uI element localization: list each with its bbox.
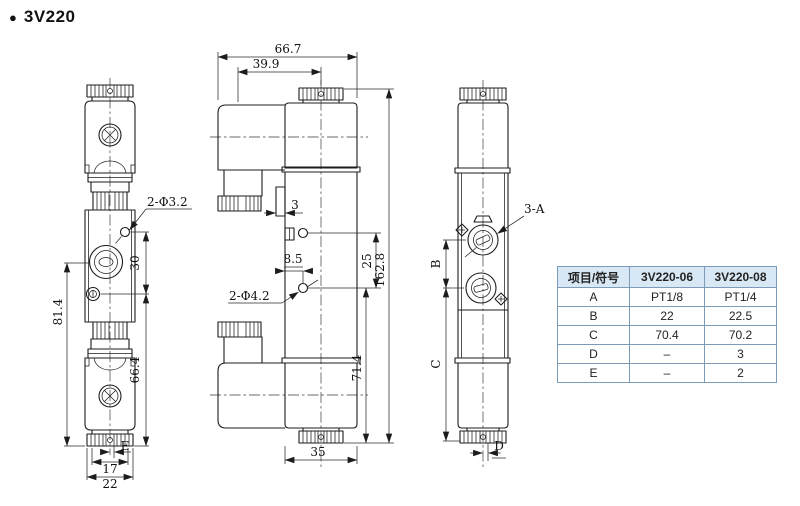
cell-E-08: 2	[705, 364, 777, 383]
table-row: A PT1/8 PT1/4	[558, 288, 777, 307]
dim-35: 35	[310, 445, 325, 459]
back-details	[459, 88, 505, 443]
cell-E-06: –	[630, 364, 705, 383]
dim-71-4: 71.4	[350, 354, 364, 381]
dim-3: 3	[291, 198, 299, 212]
cell-B-06: 22	[630, 307, 705, 326]
spec-table: 项目/符号 3V220-06 3V220-08 A PT1/8 PT1/4 B …	[557, 266, 777, 383]
back-view: 3-A B C D	[429, 80, 545, 467]
dim-B: B	[429, 259, 443, 268]
dim-66-7: 66.7	[275, 42, 302, 56]
back-dimensions	[443, 216, 524, 461]
cell-D-08: 3	[705, 345, 777, 364]
cell-item-E: E	[558, 364, 630, 383]
dim-81-4: 81.4	[51, 298, 65, 325]
dim-25: 25	[360, 253, 374, 268]
label-port-3a: 3-A	[524, 202, 545, 216]
page: ● 3V220	[0, 0, 800, 506]
table-row: D – 3	[558, 345, 777, 364]
dim-E: E	[121, 439, 130, 453]
dim-D: D	[494, 439, 504, 453]
cell-B-08: 22.5	[705, 307, 777, 326]
table-row: E – 2	[558, 364, 777, 383]
cell-C-08: 70.2	[705, 326, 777, 345]
label-hole-side: 2-Φ4.2	[229, 289, 270, 303]
dim-30: 30	[128, 255, 142, 270]
back-outline	[455, 88, 510, 443]
cell-C-06: 70.4	[630, 326, 705, 345]
side-centerlines	[210, 80, 368, 470]
cell-A-06: PT1/8	[630, 288, 705, 307]
cell-item-D: D	[558, 345, 630, 364]
dim-22: 22	[102, 477, 117, 491]
label-hole-front: 2-Φ3.2	[147, 195, 188, 209]
cell-item-C: C	[558, 326, 630, 345]
dim-66-4: 66.4	[128, 356, 142, 383]
dim-162-8: 162.8	[373, 253, 387, 287]
header-item-symbol: 项目/符号	[558, 267, 630, 288]
cell-item-A: A	[558, 288, 630, 307]
dim-C: C	[429, 359, 443, 368]
dim-17: 17	[102, 462, 117, 476]
dim-8-5: 8.5	[283, 252, 302, 266]
front-view: 2-Φ3.2 30 66.4 81.4 E 17 22	[51, 78, 192, 491]
cell-A-08: PT1/4	[705, 288, 777, 307]
header-model-08: 3V220-08	[705, 267, 777, 288]
header-model-06: 3V220-06	[630, 267, 705, 288]
cell-D-06: –	[630, 345, 705, 364]
dim-39-9: 39.9	[253, 57, 280, 71]
side-view: 66.7 39.9 3 8.5 2-Φ4.2 25 162.8 71.4 35	[210, 42, 394, 470]
spec-table-header-row: 项目/符号 3V220-06 3V220-08	[558, 267, 777, 288]
technical-drawing: 2-Φ3.2 30 66.4 81.4 E 17 22	[0, 0, 800, 506]
side-details	[222, 88, 339, 443]
table-row: C 70.4 70.2	[558, 326, 777, 345]
cell-item-B: B	[558, 307, 630, 326]
table-row: B 22 22.5	[558, 307, 777, 326]
